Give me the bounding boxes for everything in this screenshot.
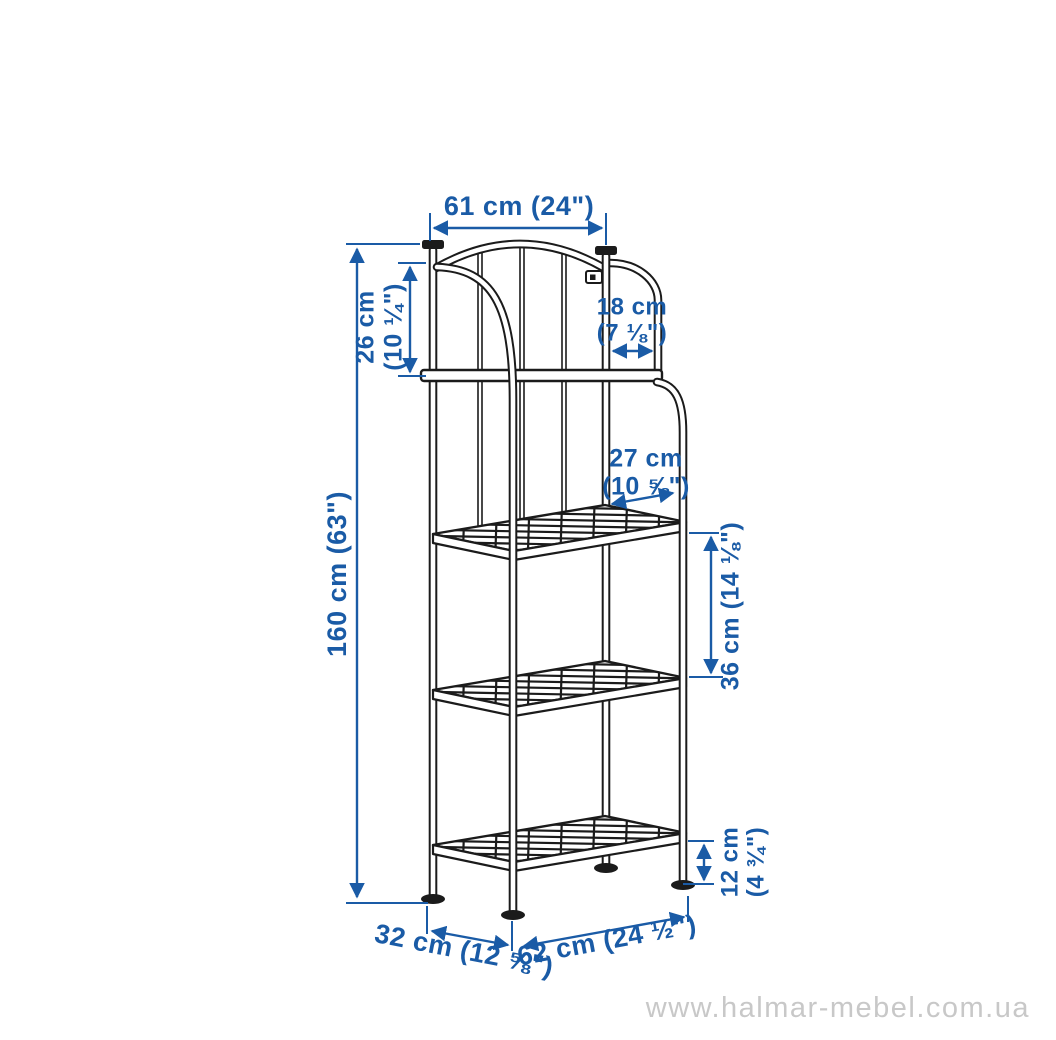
diagram-canvas: 61 cm (24") 26 cm (10 ¼") 18 cm (7 ⅛") 2… bbox=[0, 0, 1056, 1040]
dimension-side-clearance: 27 cm (10 ⅝") bbox=[602, 446, 690, 501]
dimension-shelf-spacing: 36 cm (14 ⅛") bbox=[717, 522, 745, 690]
front-legs bbox=[437, 267, 683, 912]
dimension-line: (7 ⅛") bbox=[597, 321, 668, 347]
dimension-top-width: 61 cm (24") bbox=[444, 192, 594, 222]
dimension-total-height: 160 cm (63") bbox=[323, 491, 353, 657]
dimension-top-section-height: 26 cm (10 ¼") bbox=[353, 283, 408, 371]
dimension-line: (4 ¾") bbox=[744, 827, 770, 898]
dimension-line: 12 cm bbox=[718, 827, 744, 898]
dimension-line: (10 ⅝") bbox=[602, 473, 690, 501]
dimension-top-width-text: 61 cm (24") bbox=[444, 191, 594, 221]
latch-clip bbox=[586, 271, 602, 283]
dimension-total-height-text: 160 cm (63") bbox=[322, 491, 352, 657]
dimension-bottom-clearance: 12 cm (4 ¾") bbox=[718, 827, 771, 898]
dimension-shelf-spacing-text: 36 cm (14 ⅛") bbox=[716, 522, 744, 690]
dimension-line: 18 cm bbox=[597, 295, 668, 321]
dimension-line: 27 cm bbox=[602, 446, 690, 474]
product-line-art bbox=[0, 0, 1056, 1040]
dimension-line: (10 ¼") bbox=[380, 283, 408, 371]
top-shelf-rail bbox=[421, 370, 662, 381]
watermark-text: www.halmar-mebel.com.ua bbox=[646, 992, 1030, 1025]
dimension-top-side-opening: 18 cm (7 ⅛") bbox=[597, 295, 668, 348]
feet bbox=[421, 863, 695, 920]
dimension-line: 26 cm bbox=[353, 283, 381, 371]
